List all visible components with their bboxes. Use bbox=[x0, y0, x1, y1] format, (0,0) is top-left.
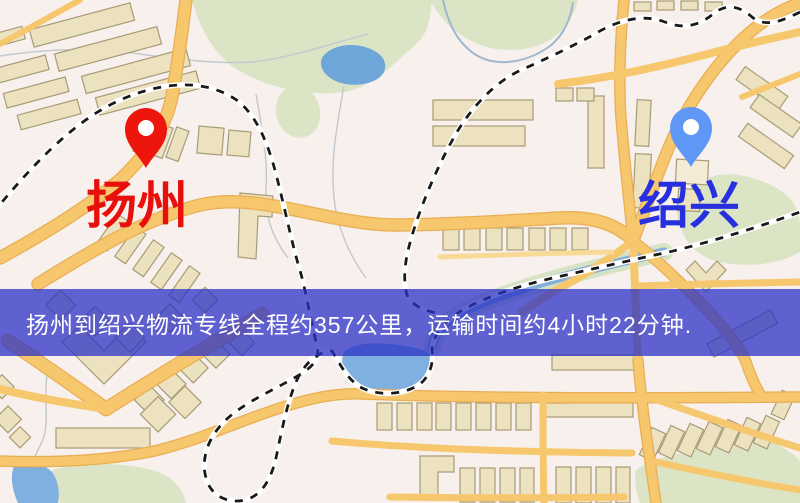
destination-pin-hole bbox=[683, 119, 699, 135]
origin-city-label: 扬州 bbox=[86, 178, 188, 235]
route-info-banner: 扬州到绍兴物流专线全程约357公里，运输时间约4小时22分钟. bbox=[0, 289, 800, 356]
map-screenshot: 扬州 绍兴 扬州到绍兴物流专线全程约357公里，运输时间约4小时22分钟. bbox=[0, 0, 800, 503]
origin-pin-hole bbox=[138, 120, 154, 136]
map-canvas[interactable]: 扬州 绍兴 bbox=[0, 0, 800, 503]
route-info-text: 扬州到绍兴物流专线全程约357公里，运输时间约4小时22分钟. bbox=[26, 306, 692, 340]
destination-city-label: 绍兴 bbox=[638, 178, 740, 235]
